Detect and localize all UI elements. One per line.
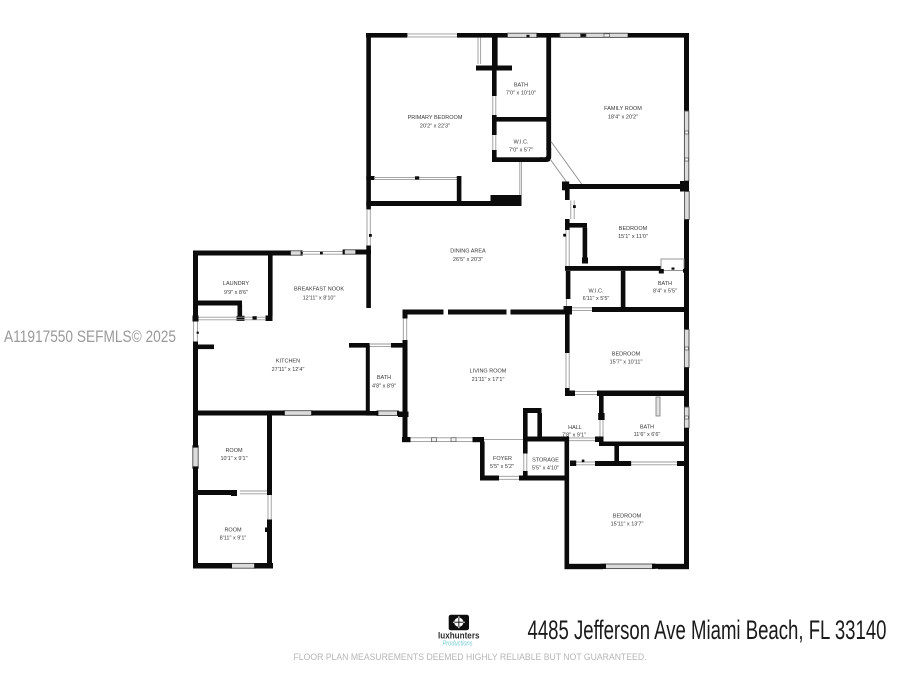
svg-text:5'5" x 4'10": 5'5" x 4'10"	[532, 466, 559, 472]
svg-text:27'11" x 12'4": 27'11" x 12'4"	[272, 367, 305, 373]
svg-text:11'6" x 6'6": 11'6" x 6'6"	[634, 432, 661, 438]
svg-text:FOYER: FOYER	[493, 456, 512, 462]
svg-text:A11917550 SEFMLS© 2025: A11917550 SEFMLS© 2025	[4, 328, 176, 346]
svg-text:7'0" x 10'10": 7'0" x 10'10"	[506, 91, 536, 97]
svg-text:8'11" x 9'1": 8'11" x 9'1"	[220, 536, 247, 542]
svg-text:BATH: BATH	[658, 281, 672, 287]
svg-text:HALL: HALL	[568, 425, 582, 431]
svg-text:BATH: BATH	[377, 375, 391, 381]
svg-text:W.I.C.: W.I.C.	[514, 140, 529, 146]
svg-text:12'11" x 8'10": 12'11" x 8'10"	[303, 296, 336, 302]
svg-text:FLOOR PLAN MEASUREMENTS DEEMED: FLOOR PLAN MEASUREMENTS DEEMED HIGHLY RE…	[294, 652, 647, 663]
svg-text:Productions: Productions	[443, 639, 473, 648]
svg-text:BATH: BATH	[640, 425, 654, 431]
svg-text:6'11" x 5'5": 6'11" x 5'5"	[583, 296, 610, 302]
svg-text:15'7" x 10'11": 15'7" x 10'11"	[610, 360, 643, 366]
svg-text:BREAKFAST NOOK: BREAKFAST NOOK	[294, 287, 344, 293]
svg-text:LIVING ROOM: LIVING ROOM	[470, 369, 507, 375]
svg-text:LAUNDRY: LAUNDRY	[223, 281, 250, 287]
svg-text:15'11" x 13'7": 15'11" x 13'7"	[611, 522, 644, 528]
svg-text:5'5" x 5'2": 5'5" x 5'2"	[490, 464, 514, 470]
svg-text:DINING AREA: DINING AREA	[450, 249, 486, 255]
svg-text:8'4" x 5'5": 8'4" x 5'5"	[653, 289, 677, 295]
svg-text:PRIMARY BEDROOM: PRIMARY BEDROOM	[408, 115, 463, 121]
svg-text:FAMILY ROOM: FAMILY ROOM	[604, 106, 642, 112]
svg-text:15'1" x 11'0": 15'1" x 11'0"	[618, 234, 648, 240]
svg-text:ROOM: ROOM	[225, 448, 243, 454]
svg-text:W.I.C.: W.I.C.	[589, 289, 604, 295]
svg-text:KITCHEN: KITCHEN	[276, 359, 300, 365]
svg-text:10'1" x 9'1": 10'1" x 9'1"	[220, 456, 247, 462]
svg-text:21'11" x 17'1": 21'11" x 17'1"	[472, 377, 505, 383]
svg-text:4'8" x 8'9": 4'8" x 8'9"	[372, 383, 396, 389]
svg-text:9'9" x 8'6": 9'9" x 8'6"	[224, 290, 248, 296]
svg-text:7'0" x 5'7": 7'0" x 5'7"	[509, 148, 533, 154]
svg-text:ROOM: ROOM	[224, 528, 242, 534]
svg-text:26'5" x 20'3": 26'5" x 20'3"	[453, 257, 483, 263]
svg-text:4485 Jefferson Ave Miami Beach: 4485 Jefferson Ave Miami Beach, FL 33140	[528, 615, 887, 645]
svg-text:7'8" x 9'1": 7'8" x 9'1"	[562, 433, 586, 439]
svg-text:BEDROOM: BEDROOM	[619, 226, 648, 232]
svg-text:BEDROOM: BEDROOM	[613, 514, 642, 520]
svg-text:20'2" x 22'3": 20'2" x 22'3"	[420, 124, 450, 130]
svg-text:STORAGE: STORAGE	[532, 458, 559, 464]
svg-text:BEDROOM: BEDROOM	[612, 352, 641, 358]
svg-text:18'4" x 20'2": 18'4" x 20'2"	[608, 115, 638, 121]
svg-text:BATH: BATH	[514, 83, 528, 89]
